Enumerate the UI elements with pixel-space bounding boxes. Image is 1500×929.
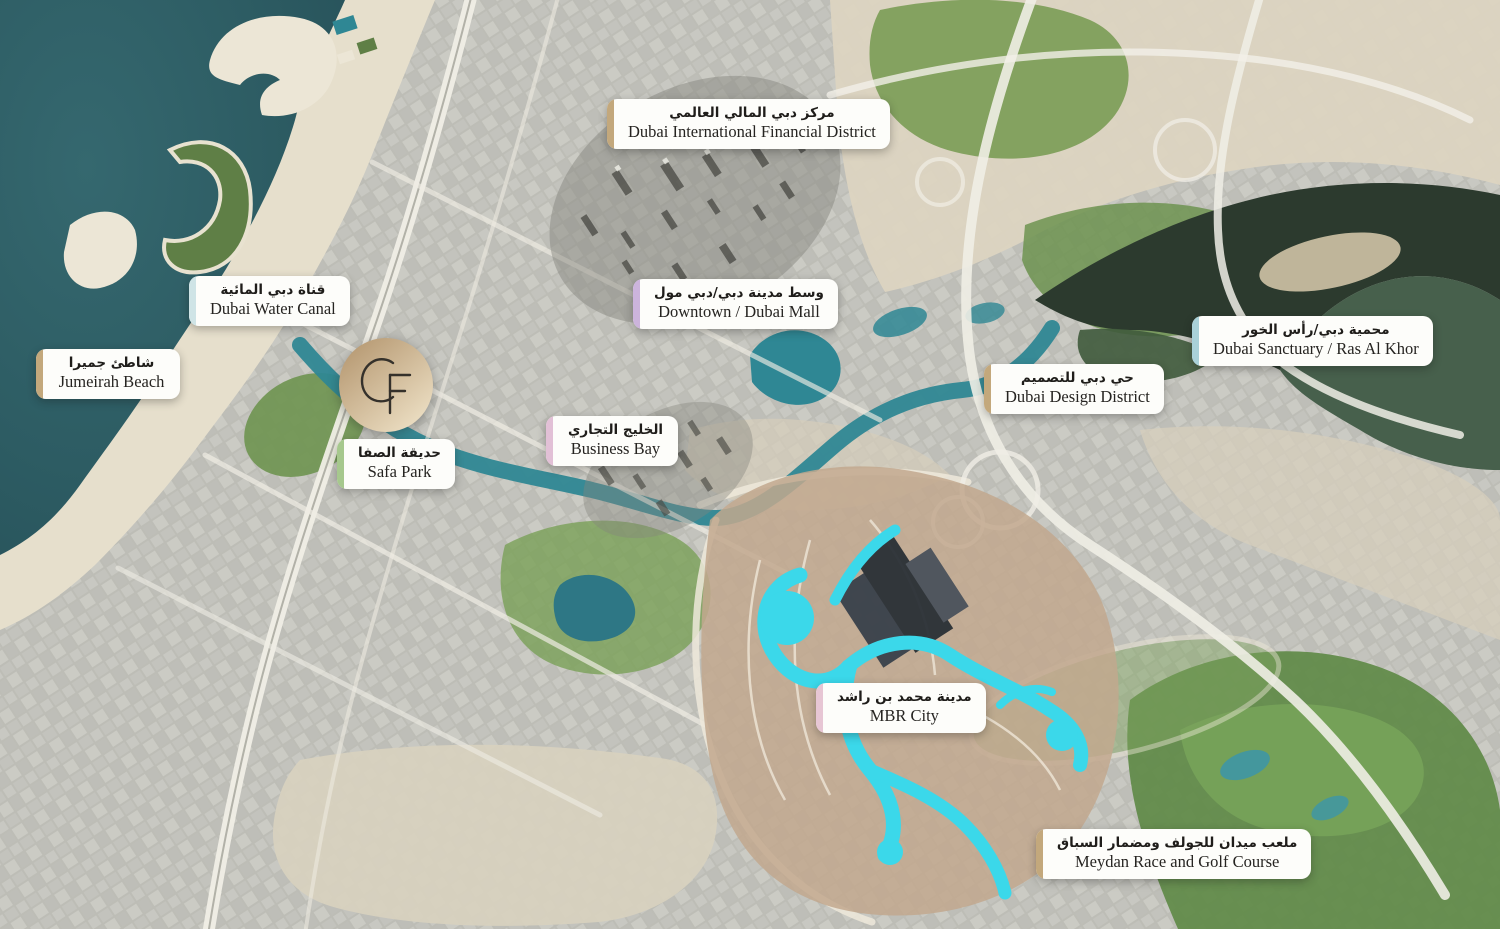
label-accent-bar xyxy=(546,416,553,466)
logo-circle xyxy=(339,338,433,432)
label-arabic-text: وسط مدينة دبي/دبي مول xyxy=(654,285,824,301)
label-arabic-text: مركز دبي المالي العالمي xyxy=(669,105,834,121)
map-label-dubai-international-financial-district: مركز دبي المالي العالمي Dubai Internatio… xyxy=(607,99,890,149)
map-label-meydan-race-and-golf-course: ملعب ميدان للجولف ومضمار السباق Meydan R… xyxy=(1036,829,1311,879)
label-english-text: MBR City xyxy=(870,706,939,726)
map-label-dubai-design-district: حي دبي للتصميم Dubai Design District xyxy=(984,364,1164,414)
label-accent-bar xyxy=(1036,829,1043,879)
label-accent-bar xyxy=(607,99,614,149)
label-english-text: Business Bay xyxy=(571,439,660,459)
cf-logo xyxy=(338,337,434,433)
label-arabic-text: قناة دبي المائية xyxy=(220,282,325,298)
label-english-text: Dubai International Financial District xyxy=(628,122,876,142)
label-english-text: Dubai Design District xyxy=(1005,387,1150,407)
label-arabic-text: شاطئ جميرا xyxy=(69,355,154,371)
label-accent-bar xyxy=(36,349,43,399)
label-english-text: Dubai Sanctuary / Ras Al Khor xyxy=(1213,339,1419,359)
map-label-mbr-city: مدينة محمد بن راشد MBR City xyxy=(816,683,986,733)
map-stage: مركز دبي المالي العالمي Dubai Internatio… xyxy=(0,0,1500,929)
label-arabic-text: مدينة محمد بن راشد xyxy=(837,689,972,705)
map-label-safa-park: حديقة الصفا Safa Park xyxy=(337,439,455,489)
map-label-dubai-water-canal: قناة دبي المائية Dubai Water Canal xyxy=(189,276,350,326)
label-arabic-text: محمية دبي/رأس الخور xyxy=(1242,322,1390,338)
map-label-downtown-dubai-mall: وسط مدينة دبي/دبي مول Downtown / Dubai M… xyxy=(633,279,838,329)
map-label-jumeirah-beach: شاطئ جميرا Jumeirah Beach xyxy=(36,349,180,399)
label-arabic-text: حي دبي للتصميم xyxy=(1021,370,1134,386)
map-label-business-bay: الخليج التجاري Business Bay xyxy=(546,416,678,466)
label-accent-bar xyxy=(816,683,823,733)
label-arabic-text: ملعب ميدان للجولف ومضمار السباق xyxy=(1057,835,1297,851)
label-english-text: Dubai Water Canal xyxy=(210,299,336,319)
label-english-text: Meydan Race and Golf Course xyxy=(1075,852,1279,872)
map-label-dubai-sanctuary-ras-al-khor: محمية دبي/رأس الخور Dubai Sanctuary / Ra… xyxy=(1192,316,1433,366)
label-arabic-text: حديقة الصفا xyxy=(358,445,441,461)
label-accent-bar xyxy=(1192,316,1199,366)
label-accent-bar xyxy=(337,439,344,489)
label-arabic-text: الخليج التجاري xyxy=(568,422,663,438)
label-accent-bar xyxy=(633,279,640,329)
label-english-text: Downtown / Dubai Mall xyxy=(658,302,820,322)
label-accent-bar xyxy=(189,276,196,326)
label-english-text: Jumeirah Beach xyxy=(59,372,165,392)
label-english-text: Safa Park xyxy=(368,462,432,482)
label-accent-bar xyxy=(984,364,991,414)
